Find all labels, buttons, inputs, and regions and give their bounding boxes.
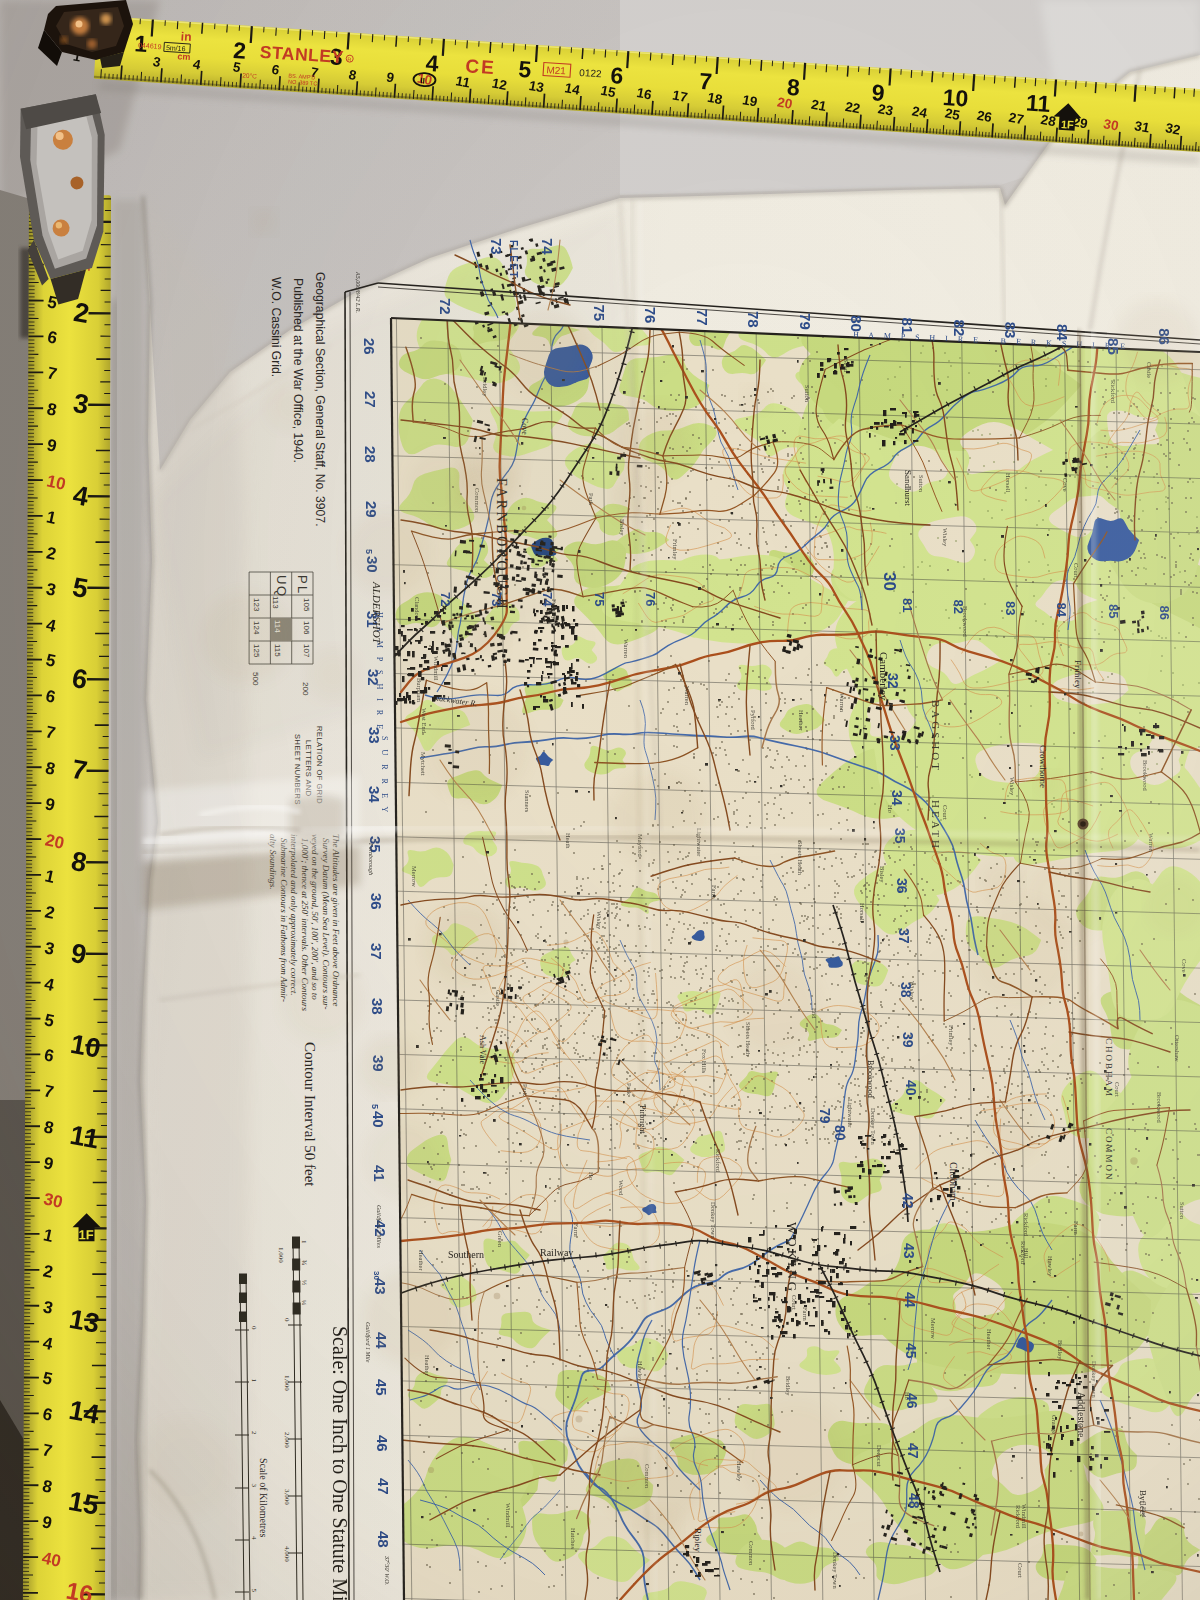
svg-text:20: 20 [43,830,66,853]
svg-text:R: R [347,56,351,62]
svg-text:30: 30 [42,1189,65,1212]
svg-text:15: 15 [66,1486,101,1521]
svg-text:32: 32 [1164,120,1182,138]
svg-text:14: 14 [67,1395,102,1430]
svg-text:1F: 1F [1061,118,1075,131]
svg-text:10: 10 [45,471,68,494]
svg-text:30: 30 [1102,116,1120,134]
svg-text:19: 19 [741,92,759,110]
svg-text:22: 22 [844,99,862,117]
svg-text:in: in [180,29,192,44]
svg-text:II: II [420,76,425,85]
svg-text:17: 17 [671,87,689,105]
svg-text:27: 27 [1008,110,1026,128]
svg-text:16: 16 [64,1577,95,1600]
svg-text:M21: M21 [546,64,567,76]
svg-text:10: 10 [68,1029,103,1064]
svg-text:1F: 1F [78,1227,93,1242]
svg-text:20°C: 20°C [242,72,257,80]
svg-text:20: 20 [776,94,794,112]
svg-text:CE: CE [465,55,497,78]
svg-text:11: 11 [68,1120,101,1155]
svg-text:40: 40 [40,1548,63,1571]
svg-text:13: 13 [67,1304,102,1339]
svg-text:cm: cm [177,51,191,62]
svg-text:0122: 0122 [579,67,602,79]
